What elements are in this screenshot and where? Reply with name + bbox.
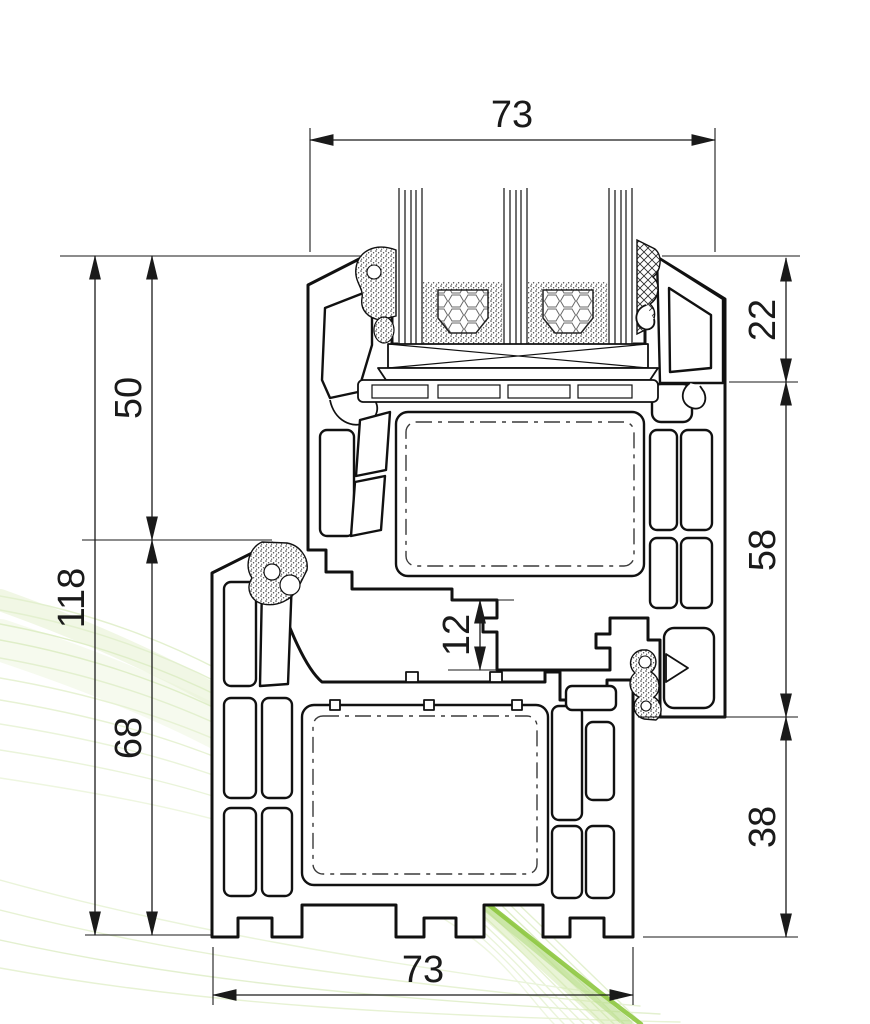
- spacer-bar: [423, 282, 503, 348]
- glazing-rebate-drainage: [358, 380, 658, 402]
- sash-chamber: [681, 538, 712, 608]
- frame-drain-slot: [424, 700, 434, 710]
- dim-label-upper-left: 50: [108, 377, 150, 419]
- dim-label-bottom-width: 73: [402, 949, 444, 991]
- frame-upstand-chamber: [566, 686, 616, 710]
- frame-rebate-upstand: [490, 672, 502, 682]
- frame-main-chamber: [302, 705, 548, 885]
- center-gasket: [630, 650, 661, 720]
- left-glazing-gasket-lobe: [374, 317, 394, 343]
- frame-chamber: [224, 808, 256, 896]
- sash-chamber: [650, 430, 677, 530]
- dim-label-top-width: 73: [491, 94, 533, 136]
- glazing-unit: [358, 188, 658, 402]
- desiccant-honeycomb: [438, 290, 488, 333]
- frame-gasket-hollow: [264, 564, 280, 580]
- dim-label-rebate-step: 12: [436, 614, 478, 656]
- dim-label-frame-right: 38: [742, 806, 784, 848]
- frame-chamber: [586, 826, 614, 898]
- gasket-hollow: [639, 656, 651, 668]
- drawing-canvas: 73 73 118 50 68 22 58 38 12: [0, 0, 870, 1024]
- spacer-bar: [528, 282, 608, 348]
- frame-rebate-upstand: [406, 672, 418, 682]
- frame-drain-slot: [330, 700, 340, 710]
- sash-main-chamber: [396, 412, 644, 576]
- desiccant-honeycomb: [543, 290, 593, 333]
- frame-chamber: [224, 582, 256, 686]
- frame-chamber: [262, 808, 292, 896]
- glass-pane: [398, 188, 423, 348]
- frame-chamber: [552, 706, 582, 820]
- setting-block: [378, 344, 658, 380]
- dim-label-sash-height: 58: [742, 529, 784, 571]
- sash-chamber: [320, 430, 354, 536]
- frame-drain-slot: [512, 700, 522, 710]
- glass-pane: [608, 188, 633, 348]
- profile-cross-section-drawing: 73 73 118 50 68 22 58 38 12: [0, 0, 870, 1024]
- frame-chamber: [552, 826, 582, 898]
- sash-chamber: [650, 538, 677, 608]
- dim-label-frame-height: 68: [108, 717, 150, 759]
- sash-chamber: [356, 412, 390, 476]
- dim-label-bead-height: 22: [742, 299, 784, 341]
- glass-pane: [503, 188, 528, 348]
- gasket-hollow: [641, 701, 651, 711]
- dim-label-total-height: 118: [51, 568, 93, 629]
- sash-chamber: [681, 430, 712, 530]
- frame-chamber: [262, 698, 292, 798]
- sash-chamber: [351, 476, 385, 536]
- frame-chamber: [586, 722, 614, 800]
- frame-gasket-hollow: [280, 575, 300, 595]
- gasket-hollow: [367, 265, 381, 279]
- frame-chamber: [224, 698, 256, 798]
